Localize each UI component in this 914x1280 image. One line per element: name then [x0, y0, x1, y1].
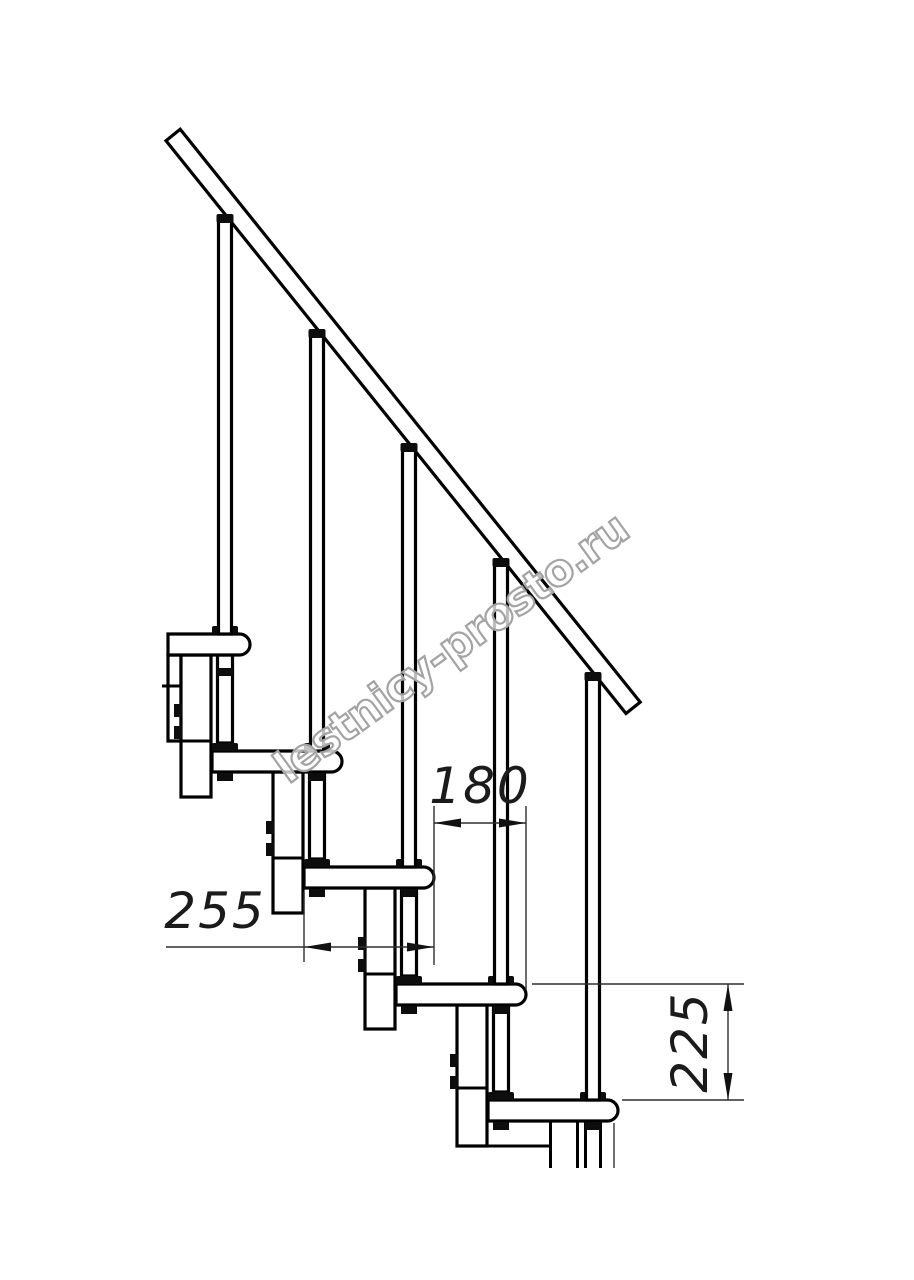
rod-collar — [304, 859, 330, 867]
bolt-tab — [450, 1076, 458, 1089]
rod-collar — [488, 1092, 514, 1100]
staircase-drawing-page: 180 255 225 lestnicy-prosto.ru — [0, 0, 914, 1280]
tread — [488, 1100, 618, 1121]
through-rod — [402, 888, 417, 976]
arrow-down-icon — [724, 1073, 733, 1100]
bolt-nut — [493, 1006, 509, 1014]
support-column — [181, 655, 211, 797]
bolt-tab — [266, 821, 274, 834]
rail-collar — [309, 329, 326, 338]
through-rod — [310, 772, 325, 859]
dimension-180: 180 — [429, 757, 530, 990]
bolt-nut — [217, 773, 233, 781]
bolt-tab — [358, 937, 366, 950]
support-column — [365, 888, 395, 1029]
arrow-right-icon — [499, 819, 526, 828]
arrow-right-icon — [407, 943, 434, 952]
rod-collar — [396, 976, 422, 984]
bolt-tab — [266, 843, 274, 856]
baluster — [219, 221, 232, 634]
bolt-nut — [493, 1122, 509, 1130]
arrow-left-icon — [434, 819, 461, 828]
rail-collar — [493, 558, 510, 567]
bolt-nut — [217, 668, 233, 676]
bolt-nut — [309, 889, 325, 897]
rail-collar — [585, 672, 602, 681]
bolt-tab — [174, 704, 182, 717]
rail-collar — [217, 214, 234, 223]
arrow-up-icon — [724, 984, 733, 1011]
through-rod — [494, 1005, 509, 1092]
rod-collar — [212, 743, 238, 751]
bolt-tab — [174, 726, 182, 739]
support-column — [457, 1005, 487, 1146]
dimension-label-depth: 255 — [164, 882, 265, 940]
tread — [168, 634, 250, 655]
baluster — [311, 336, 324, 751]
bolt-tab — [358, 959, 366, 972]
staircase-drawing: 180 255 225 lestnicy-prosto.ru — [0, 0, 914, 1280]
tread — [304, 867, 434, 888]
bolt-nut — [585, 1122, 601, 1130]
rail-collar — [401, 443, 418, 452]
arrow-left-icon — [304, 943, 331, 952]
dimension-225: 225 — [532, 984, 744, 1100]
bolt-nut — [401, 1006, 417, 1014]
dimension-label-offset: 180 — [429, 757, 530, 815]
baluster — [587, 679, 600, 1100]
dimension-label-rise: 225 — [661, 991, 719, 1092]
support-column — [273, 772, 303, 913]
bolt-tab — [450, 1054, 458, 1067]
bolt-nut — [401, 889, 417, 897]
tread — [396, 984, 526, 1005]
